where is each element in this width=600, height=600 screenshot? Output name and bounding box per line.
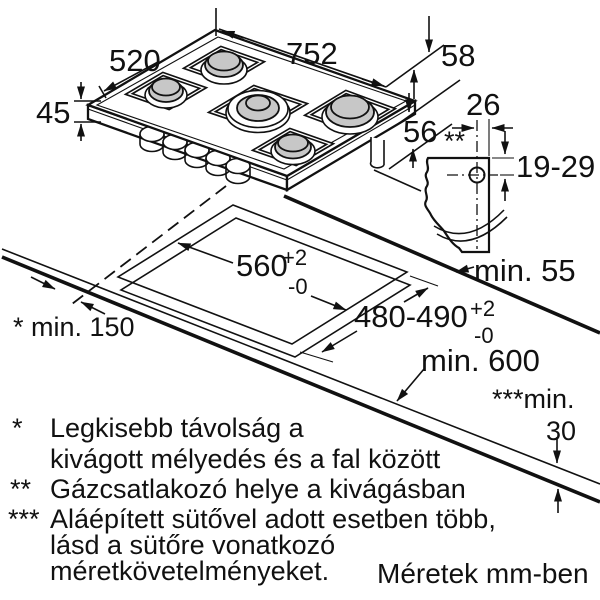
dim-min30-label: ***min. xyxy=(492,384,575,414)
dim-752-label: 752 xyxy=(286,36,338,71)
units-caption: Méretek mm-ben xyxy=(377,558,589,589)
ext-line-1 xyxy=(386,45,444,87)
footnote-2-marker: ** xyxy=(10,474,32,504)
dim-26-label: 26 xyxy=(466,87,500,122)
footnote-1-line-2: kivágott mélyedés és a fal között xyxy=(50,444,441,474)
dim-58-label: 58 xyxy=(441,38,475,73)
hob-installation-diagram: 752 520 45 58 56 26 ** xyxy=(0,0,600,600)
dim-min30-value: 30 xyxy=(546,416,576,446)
dim-45-label: 45 xyxy=(36,95,70,130)
gas-connection-detail: 26 ** 19-29 min. 55 xyxy=(425,87,595,288)
wall-dashed-line xyxy=(72,186,226,304)
dim-480-490-tol-plus: +2 xyxy=(470,296,495,321)
footnote-3-line-3: méretkövetelményeket. xyxy=(50,556,329,586)
gas-detail-marker: ** xyxy=(444,126,466,156)
ext-line-4 xyxy=(374,170,421,191)
dim-min600-label: min. 600 xyxy=(421,343,540,378)
cutout-inner-edge xyxy=(121,218,410,357)
dim-560-tol-plus: +2 xyxy=(282,245,307,270)
dim-560-label: 560 xyxy=(236,248,288,283)
dim-520-label: 520 xyxy=(109,43,161,78)
diagram-canvas: 752 520 45 58 56 26 ** xyxy=(0,0,600,600)
footnote-3-marker: *** xyxy=(8,504,40,534)
footnote-1-marker: * xyxy=(12,413,23,443)
dim-560-tol-minus: -0 xyxy=(288,274,308,299)
dim-480-490-label: 480-490 xyxy=(354,299,468,334)
gas-pipe xyxy=(371,137,384,168)
dim-min55-label: min. 55 xyxy=(474,253,576,288)
dim-19-29-label: 19-29 xyxy=(516,149,595,184)
footnote-2-line-1: Gázcsatlakozó helye a kivágásban xyxy=(50,474,466,504)
dim-56-label: 56 xyxy=(403,114,437,149)
dim-min150-label: * min. 150 xyxy=(13,312,135,342)
burner-center-wok xyxy=(226,91,290,133)
footnote-1-line-1: Legkisebb távolság a xyxy=(50,413,305,443)
